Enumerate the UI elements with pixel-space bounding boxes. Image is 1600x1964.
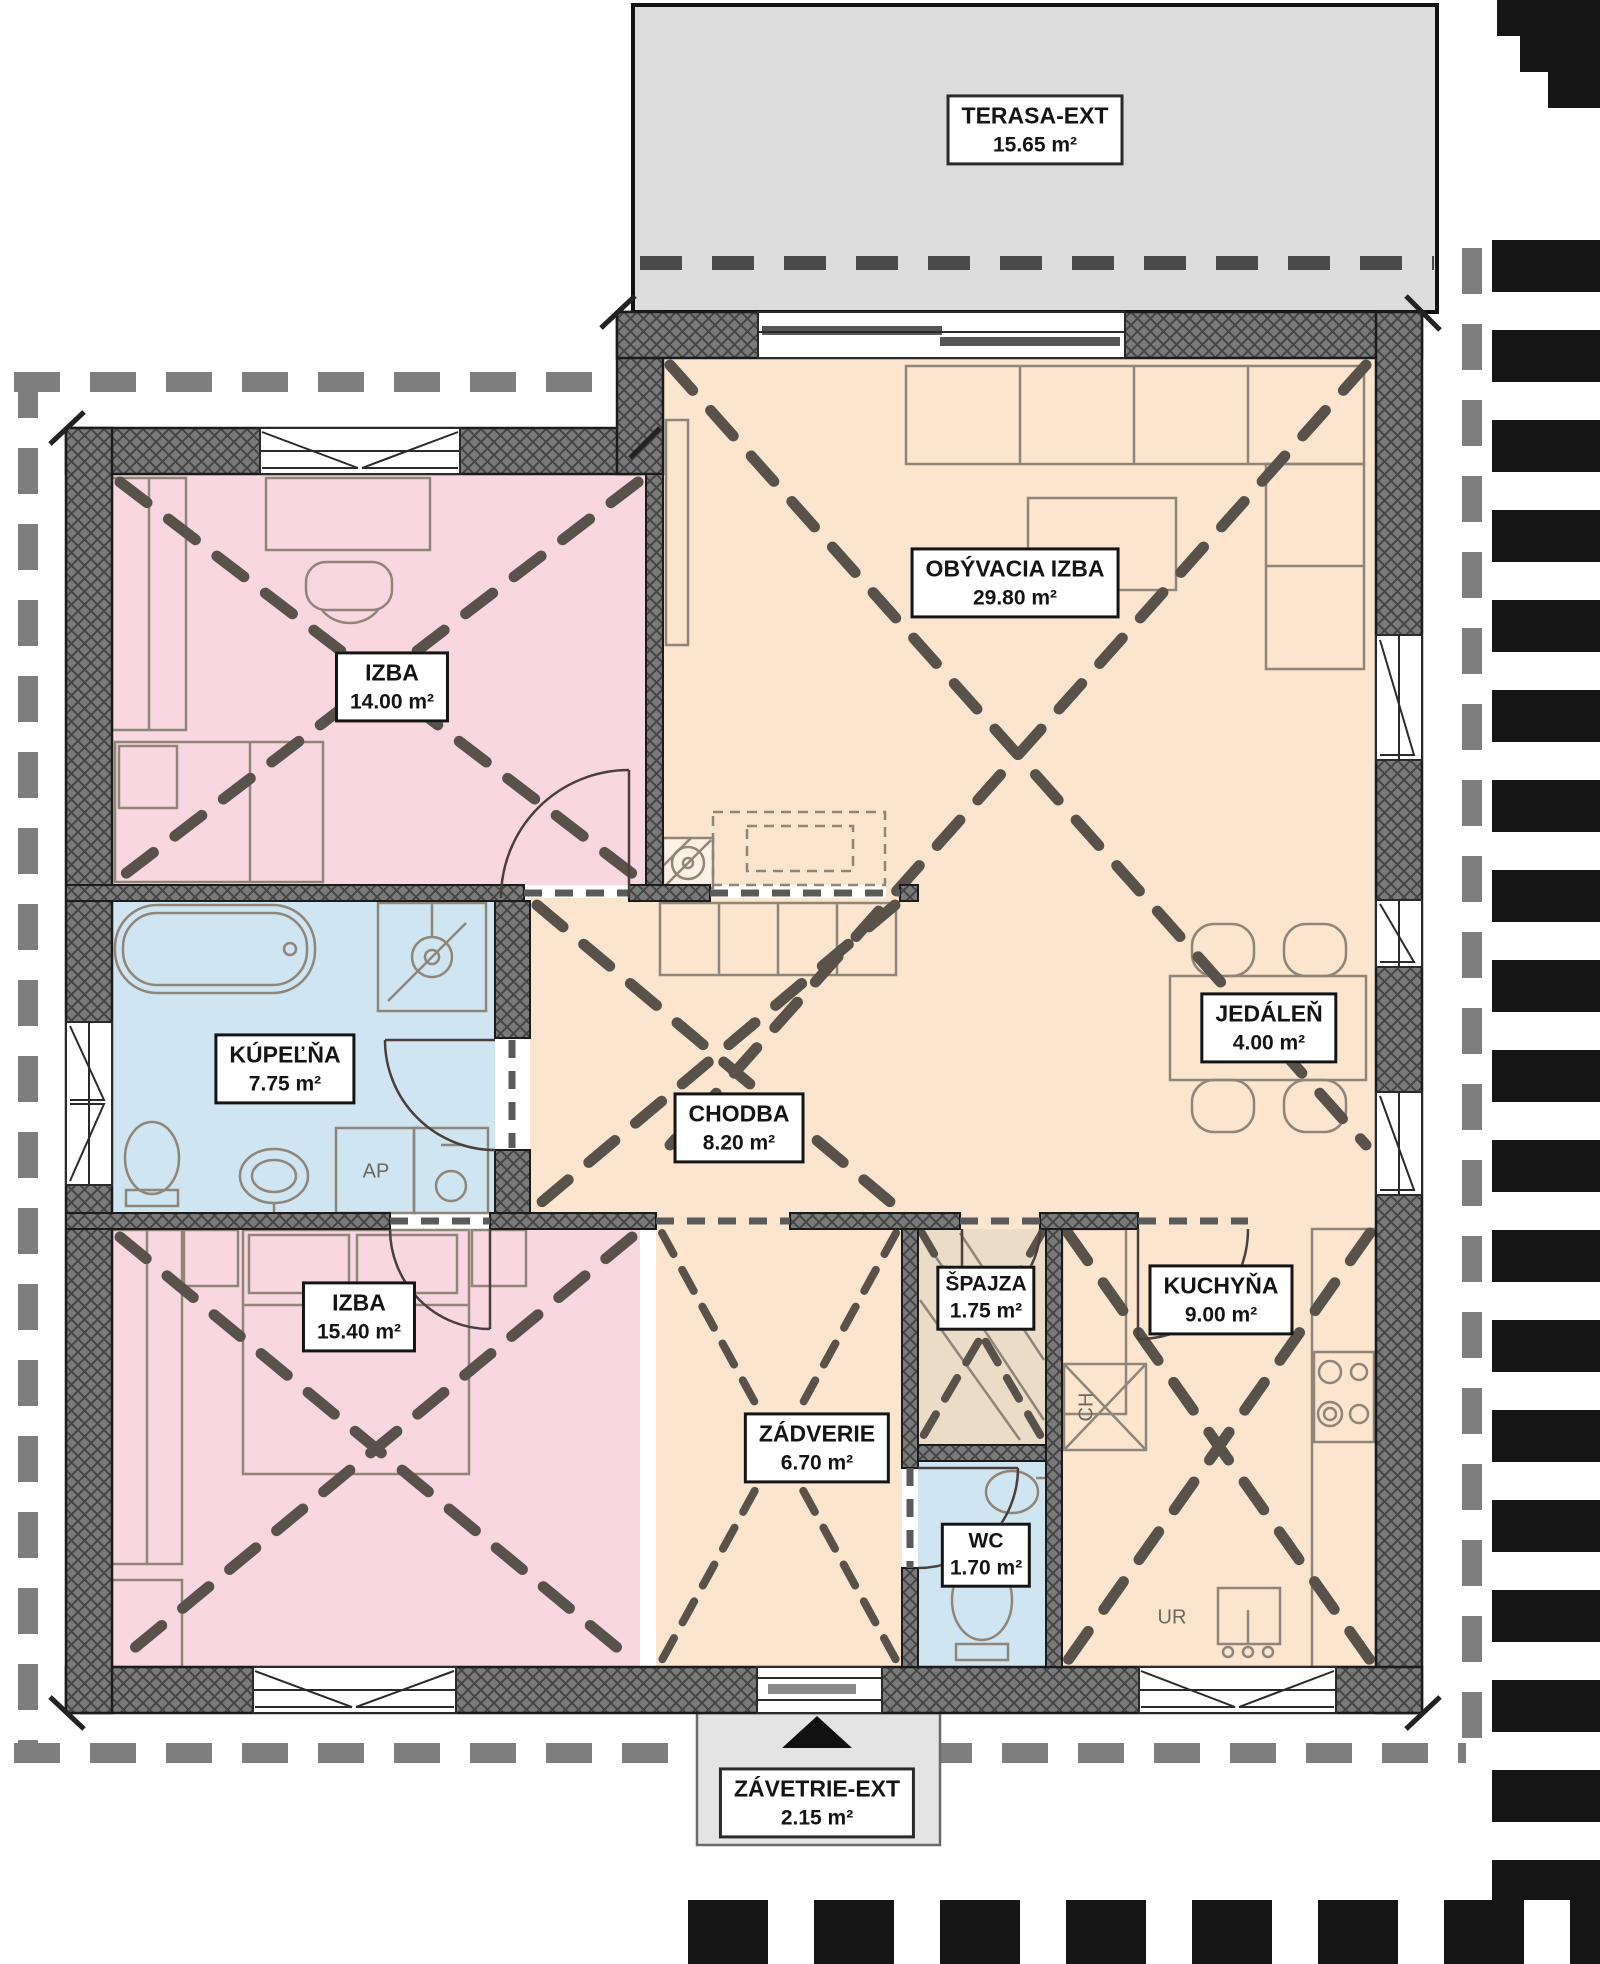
room-name: ZÁVETRIE-EXT — [734, 1774, 900, 1804]
room-name: TERASA-EXT — [962, 101, 1109, 131]
window-bottom-left — [253, 1667, 456, 1713]
room-label-zavetrie: ZÁVETRIE-EXT 2.15 m² — [719, 1767, 915, 1838]
room-label-zadverie: ZÁDVERIE 6.70 m² — [744, 1412, 890, 1483]
terrace-sliding-door — [758, 312, 1125, 358]
room-label-izba1: IZBA 14.00 m² — [335, 651, 449, 722]
window-top-left — [260, 428, 460, 474]
room-label-chodba: CHODBA 8.20 m² — [674, 1092, 805, 1163]
room-area: 2.15 m² — [734, 1804, 900, 1831]
window-left-bathroom — [66, 1022, 112, 1185]
entrance-door — [757, 1667, 882, 1713]
room-name: IZBA — [350, 658, 434, 688]
appliance-text: CH — [1076, 1393, 1098, 1422]
window-right-2 — [1376, 900, 1422, 967]
room-area: 9.00 m² — [1164, 1301, 1279, 1328]
window-right-1 — [1376, 635, 1422, 760]
appliance-label-ap: AP — [363, 1161, 390, 1184]
room-area: 15.65 m² — [962, 131, 1109, 158]
room-name: ŠPAJZA — [945, 1271, 1026, 1298]
room-name: ZÁDVERIE — [759, 1419, 875, 1449]
room-name: KUCHYŇA — [1164, 1271, 1279, 1301]
room-name: CHODBA — [689, 1099, 790, 1129]
room-label-obyvacia: OBÝVACIA IZBA 29.80 m² — [911, 547, 1120, 618]
room-area: 14.00 m² — [350, 688, 434, 715]
appliance-text: AP — [363, 1161, 390, 1183]
window-right-3 — [1376, 1092, 1422, 1195]
room-name: OBÝVACIA IZBA — [926, 554, 1105, 584]
room-label-terasa: TERASA-EXT 15.65 m² — [947, 94, 1124, 165]
window-bottom-right — [1139, 1667, 1336, 1713]
room-label-izba2: IZBA 15.40 m² — [302, 1281, 416, 1352]
room-label-jedalen: JEDÁLEŇ 4.00 m² — [1200, 992, 1337, 1063]
room-label-kupelna: KÚPEĽŇA 7.75 m² — [214, 1033, 355, 1104]
room-area: 6.70 m² — [759, 1449, 875, 1476]
room-area: 29.80 m² — [926, 584, 1105, 611]
room-label-wc: WC 1.70 m² — [941, 1523, 1031, 1588]
room-area: 1.75 m² — [945, 1298, 1026, 1325]
floor-plan-drawing — [0, 0, 1600, 1964]
room-area: 15.40 m² — [317, 1318, 401, 1345]
room-name: IZBA — [317, 1288, 401, 1318]
appliance-text: UR — [1158, 1607, 1187, 1629]
room-area: 7.75 m² — [229, 1070, 340, 1097]
room-name: WC — [950, 1528, 1022, 1555]
appliance-label-ch: CH — [1076, 1393, 1099, 1422]
room-label-spajza: ŠPAJZA 1.75 m² — [936, 1266, 1035, 1331]
appliance-label-ur: UR — [1158, 1607, 1187, 1630]
room-area: 4.00 m² — [1215, 1029, 1322, 1056]
room-label-kuchyna: KUCHYŇA 9.00 m² — [1149, 1264, 1294, 1335]
room-area: 1.70 m² — [950, 1555, 1022, 1582]
room-name: KÚPEĽŇA — [229, 1040, 340, 1070]
room-name: JEDÁLEŇ — [1215, 999, 1322, 1029]
floor-plan: TERASA-EXT 15.65 m² OBÝVACIA IZBA 29.80 … — [0, 0, 1600, 1964]
room-area: 8.20 m² — [689, 1129, 790, 1156]
